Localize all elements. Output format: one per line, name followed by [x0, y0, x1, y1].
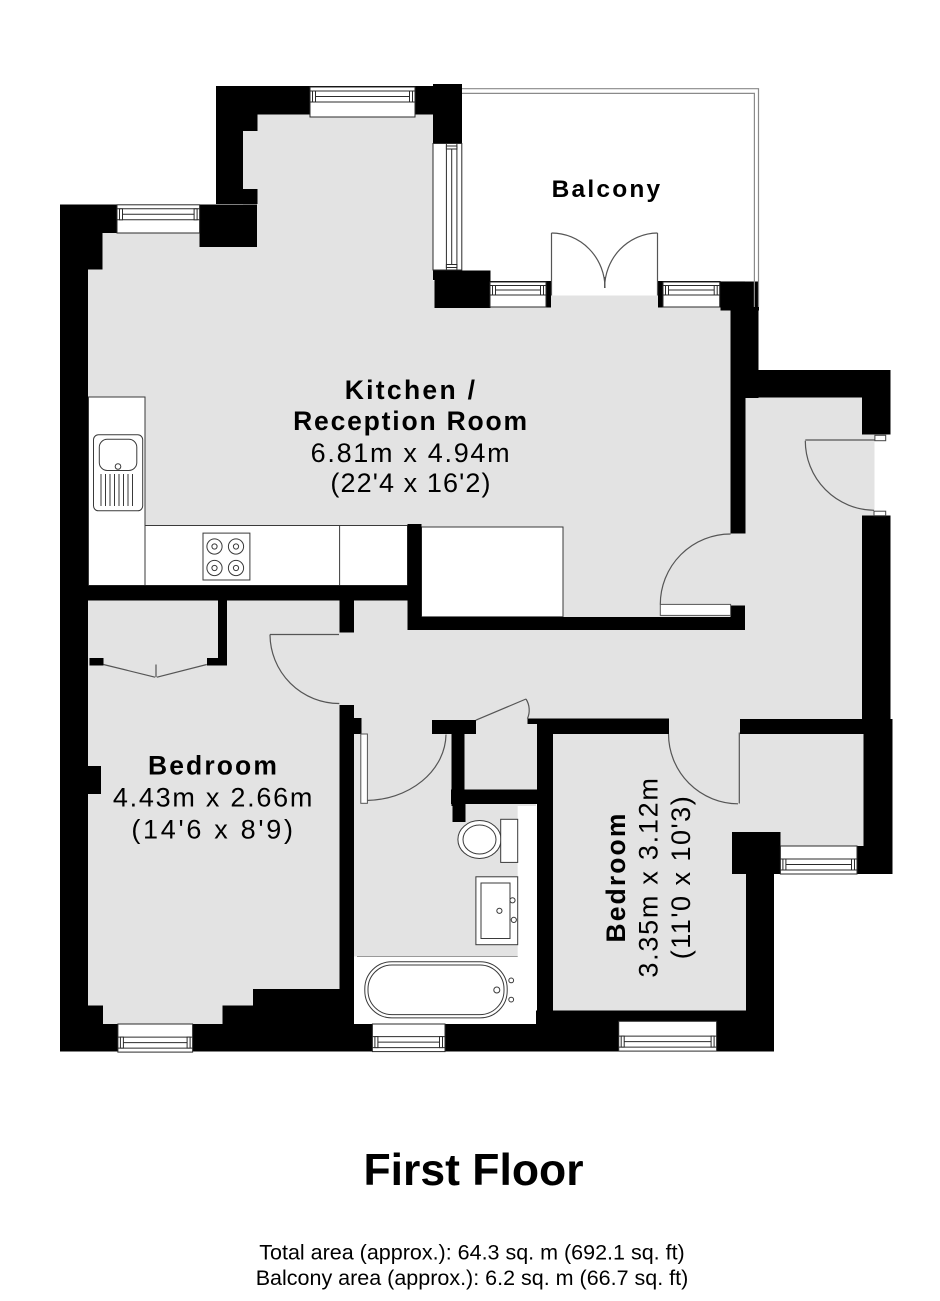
svg-text:Reception Room: Reception Room [293, 406, 529, 436]
svg-text:Kitchen /: Kitchen / [345, 375, 478, 405]
svg-text:Total area (approx.): 64.3 sq.: Total area (approx.): 64.3 sq. m (692.1 … [259, 1241, 684, 1265]
svg-text:(11'0 x 10'3): (11'0 x 10'3) [666, 795, 696, 959]
svg-text:(14'6 x 8'9): (14'6 x 8'9) [131, 815, 295, 845]
svg-text:Balcony: Balcony [552, 176, 663, 203]
svg-text:3.35m x 3.12m: 3.35m x 3.12m [634, 776, 664, 977]
svg-text:6.81m x 4.94m: 6.81m x 4.94m [311, 438, 512, 468]
svg-text:(22'4 x 16'2): (22'4 x 16'2) [330, 468, 491, 498]
svg-text:First Floor: First Floor [363, 1146, 583, 1195]
svg-text:4.43m x 2.66m: 4.43m x 2.66m [113, 783, 314, 813]
svg-text:Bedroom: Bedroom [601, 811, 631, 942]
svg-text:Bedroom: Bedroom [148, 751, 279, 781]
svg-text:Balcony area (approx.): 6.2 sq: Balcony area (approx.): 6.2 sq. m (66.7 … [256, 1266, 689, 1290]
